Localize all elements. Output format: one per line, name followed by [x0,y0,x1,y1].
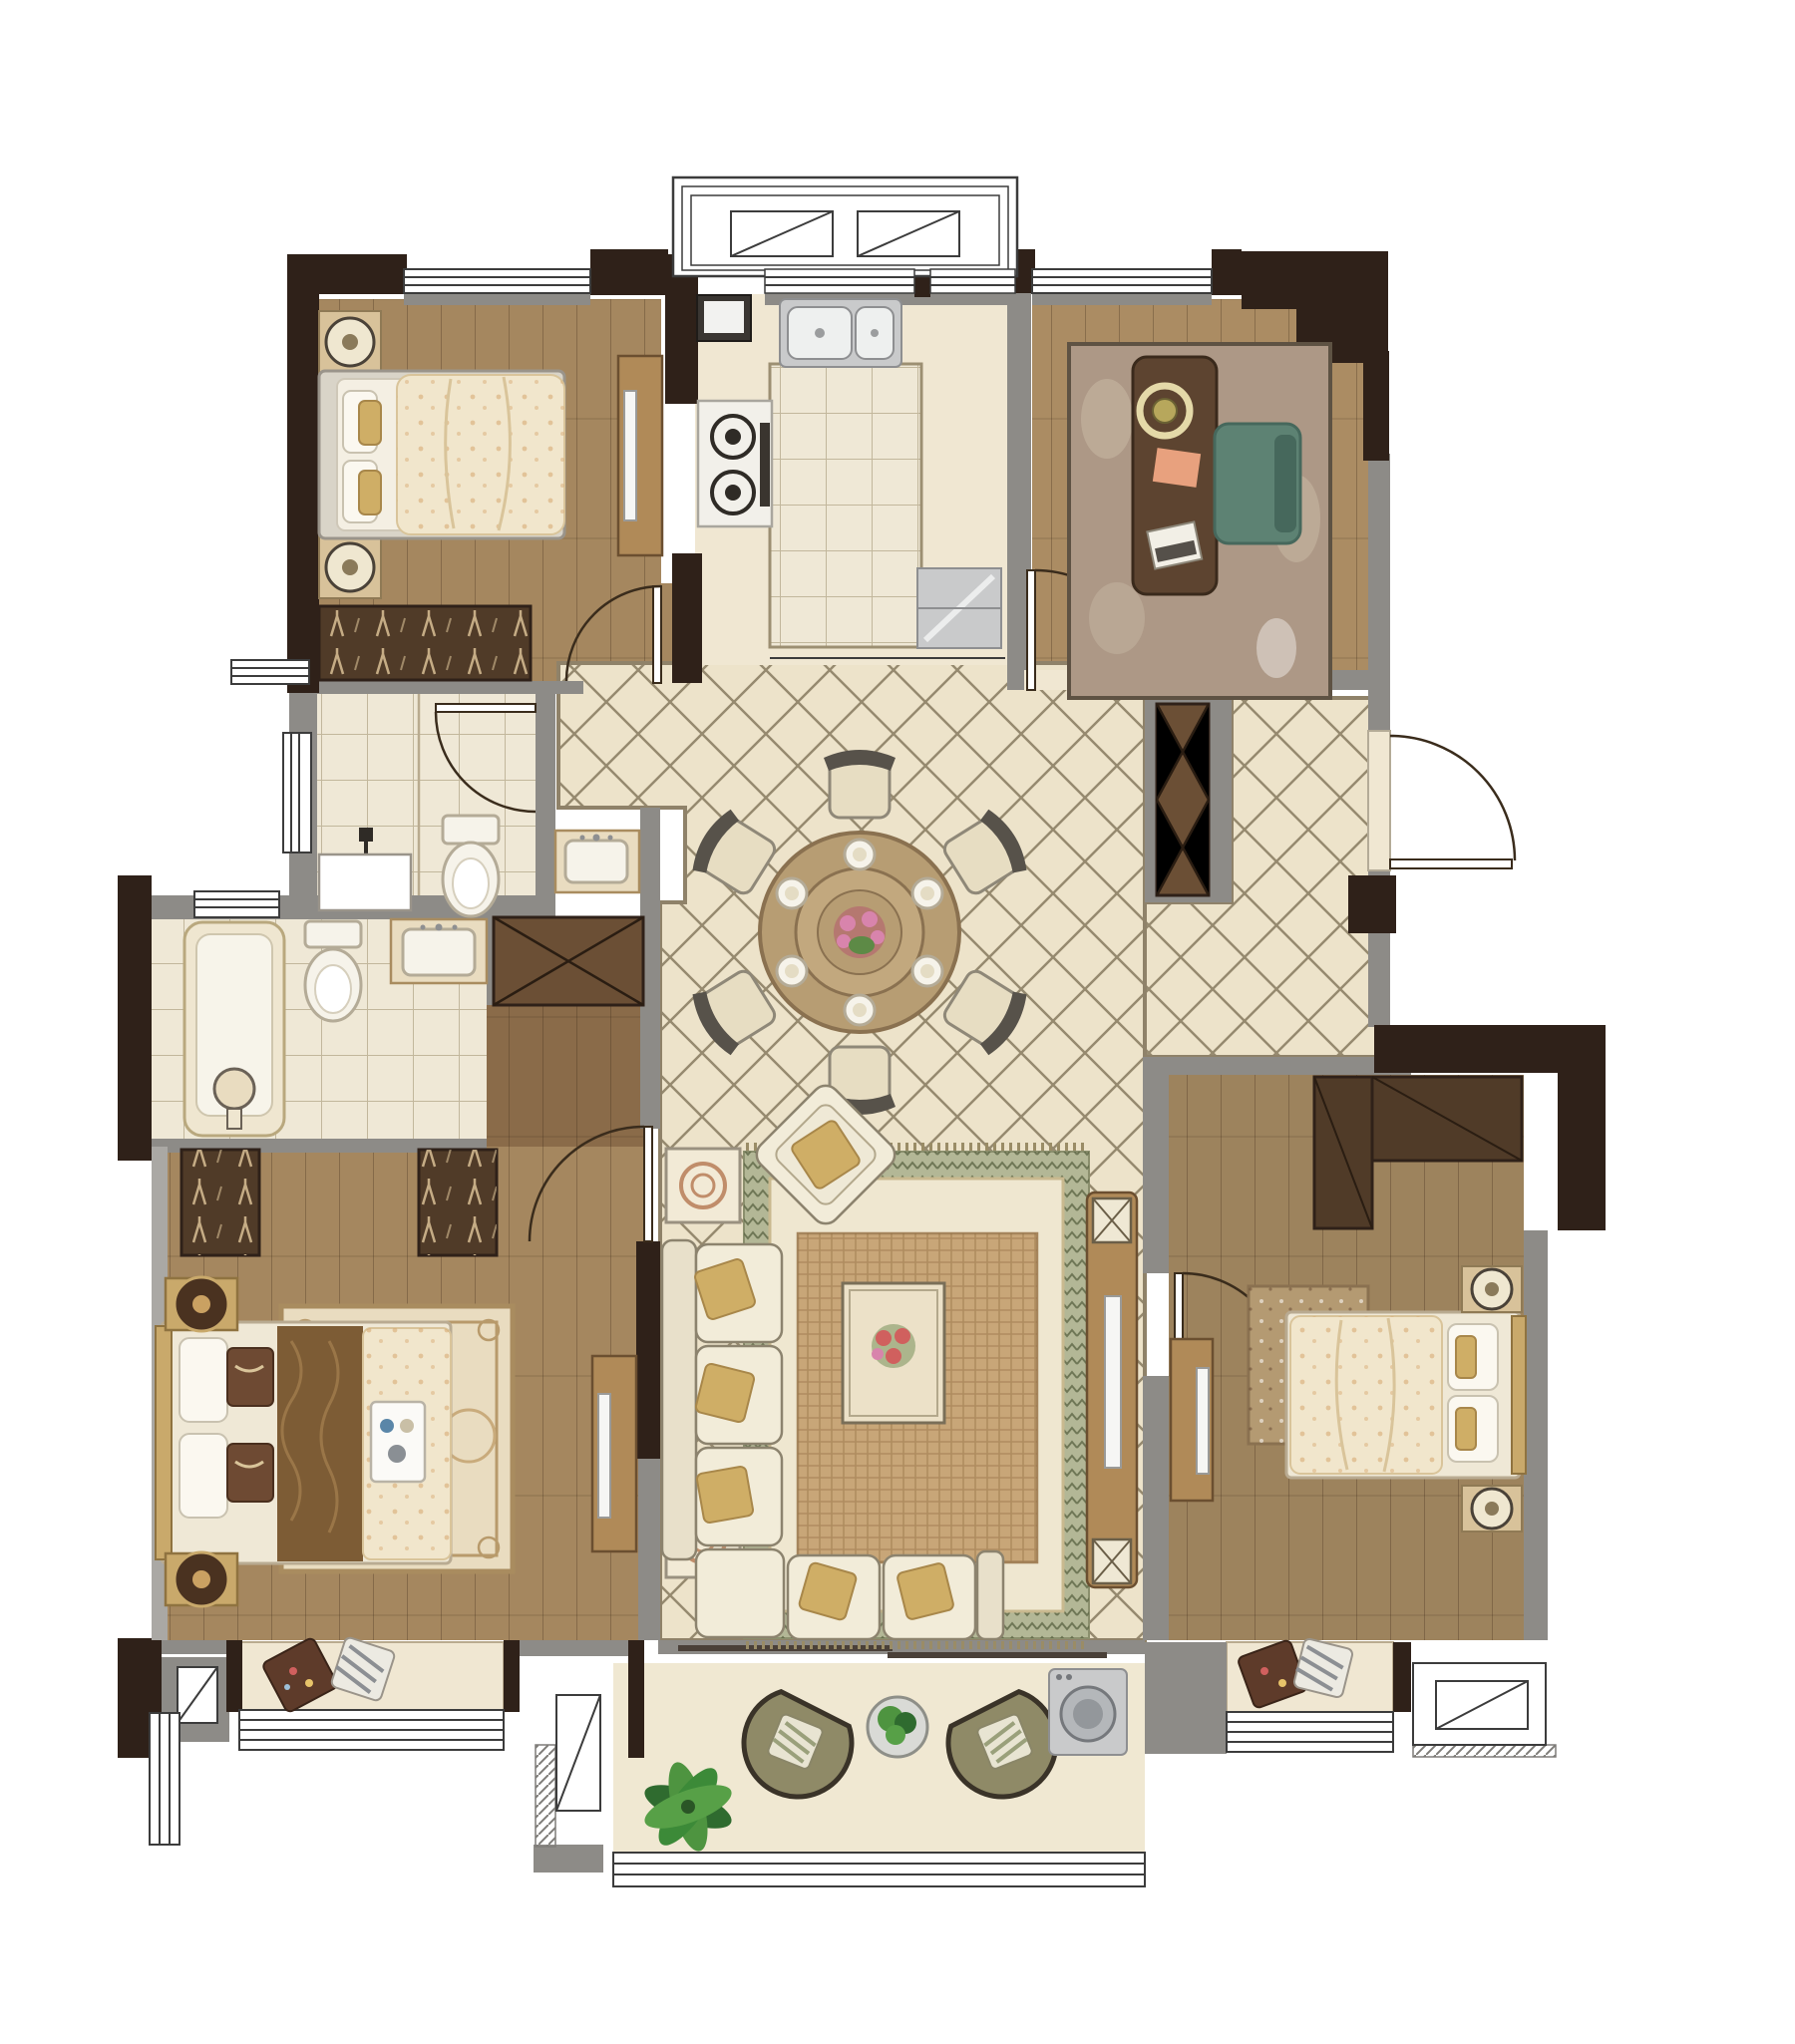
drain [815,328,825,338]
tray-cup [380,1419,394,1433]
gas-stove [698,401,772,526]
chair-back-cushion [1274,435,1296,532]
balcony-partition [556,1695,600,1811]
wall [517,1640,630,1656]
wall-master-right-lower [638,1456,660,1640]
tv-console [1087,1192,1137,1587]
hatched-sill [1413,1745,1556,1757]
toilet [443,816,499,916]
window-balcony-railing [613,1853,1145,1886]
wall-dark-left-mid [118,875,152,1161]
crossed-cabinet [494,917,643,1005]
tv-screen [1197,1368,1209,1474]
kitchen-tile-texture [770,364,921,647]
wall-dark [672,553,702,683]
desk-lamp-center [1153,399,1177,423]
wall-dark [1348,875,1396,933]
wardrobe-hangers [181,1150,259,1255]
wardrobe-hangers [319,606,531,680]
wall-dark [1374,1025,1606,1073]
sofa-pillow [696,1466,754,1524]
nightstand-with-fan-lamp [1462,1486,1522,1532]
nightstand-with-fan-lamp [1462,1266,1522,1312]
basin [565,841,627,882]
sofa-pillow [695,1363,756,1424]
wall-dark [590,249,668,295]
duvet-texture [1290,1316,1442,1474]
tv-screen [598,1394,610,1518]
tv-screen [624,391,636,520]
wall-dark-pillar [1393,1642,1411,1712]
bed [1286,1312,1526,1478]
wash-basin-counter [391,919,487,983]
study-furniture [1069,344,1330,698]
accent-pillow [359,471,381,514]
duvet-texture [397,375,564,534]
rug-motif [1089,582,1145,654]
pillow [179,1434,227,1518]
nightstand-with-record [166,1552,237,1606]
tray-pot [388,1445,406,1463]
wall-dark [1363,351,1389,461]
window-corner-bottom-right [1413,1663,1546,1745]
bathroom-upper-fixtures [319,816,639,916]
burner-center [725,485,741,501]
fan-lamp-center [342,559,358,575]
paper-sheet [1153,448,1201,488]
headboard [1512,1316,1526,1474]
window-master-bay-side [178,1667,217,1723]
wall-foyer-right-upper [1368,454,1390,731]
teal-armchair [1215,424,1300,543]
sofa-back [662,1240,696,1559]
rug-motif [1256,618,1296,678]
toilet [305,921,361,1021]
appliance-door [704,301,744,333]
pillow [179,1338,227,1422]
master-hall-texture [487,1002,643,1154]
burner-center [725,429,741,445]
wall-dark-pillar [628,1640,644,1758]
accent-pillow [1456,1408,1476,1450]
wall [158,1640,227,1654]
headboard [156,1326,172,1559]
wall-dark-pillar [226,1640,242,1712]
wall-bed3-right [1524,1230,1548,1640]
sofa-pillow [897,1562,954,1620]
master-bed [156,1322,451,1563]
breakfast-tray [371,1402,425,1482]
accent-pillow [359,401,381,445]
basin [403,929,475,975]
wall-bed3-top [1162,1057,1411,1075]
floor-plan-drawing [0,0,1795,2044]
striped-pillow [1293,1638,1354,1699]
shower-base [227,1109,241,1129]
washing-machine [1049,1669,1127,1755]
storage-box [319,854,411,910]
drain [871,329,879,337]
wall-dark-pillar [504,1640,520,1712]
floor-plan-canvas [0,0,1795,2044]
window-bedroom-top-left [404,269,590,293]
wall [1145,1642,1227,1754]
side-table [666,1149,740,1222]
accent-pillow [1456,1336,1476,1378]
window-study [1032,269,1212,293]
bathtub [184,922,284,1136]
ornate-pillow [227,1444,273,1502]
flower-centerpiece [834,906,886,958]
tray-cup [400,1419,414,1433]
wall-dark [1558,1073,1606,1230]
window-master-bay [239,1710,504,1750]
wall-dark-pillar [1212,249,1242,295]
wardrobe-hangers [419,1150,497,1255]
rug-motif [1081,379,1133,459]
tv-screen [1105,1296,1121,1468]
window-master-balcony-left [150,1713,179,1845]
living-room-furniture [662,1080,1137,1645]
fan-lamp-center [342,334,358,350]
window-bath-upper [283,733,311,852]
ornate-pillow [227,1348,273,1406]
nightstand-with-record [166,1277,237,1331]
wall-dark-left [287,254,319,693]
wall-bath-upper-right [536,691,555,912]
dining-chair [830,760,890,818]
kitchen-sink [780,299,901,367]
round-plant-table [868,1697,927,1757]
window-bath-lower [194,891,279,917]
floor-drain [359,828,373,842]
bay-window-kitchen [673,177,1017,293]
wall-bed3-left-upper [1143,1057,1169,1273]
wall-bed3-left-lower [1143,1376,1169,1640]
coffee-table [843,1283,944,1423]
window-corridor-vent [231,660,309,684]
wall-dark-step [1242,251,1303,309]
slider-panel [888,1652,1107,1658]
wall-dark-master-right [636,1241,660,1459]
window-bed3-bay [1227,1712,1393,1752]
hatched-sill [536,1745,555,1847]
shower-lamp [214,1069,254,1109]
sofa-corner-seat [696,1549,784,1637]
entry-shoe-cabinet [1157,704,1209,895]
wash-basin-counter [555,831,639,892]
bed [319,371,564,538]
wall [534,1845,603,1873]
sofa-armrest [977,1551,1003,1639]
stove-panel [760,423,770,507]
refrigerator [917,568,1001,648]
door-entry [1368,731,1515,870]
